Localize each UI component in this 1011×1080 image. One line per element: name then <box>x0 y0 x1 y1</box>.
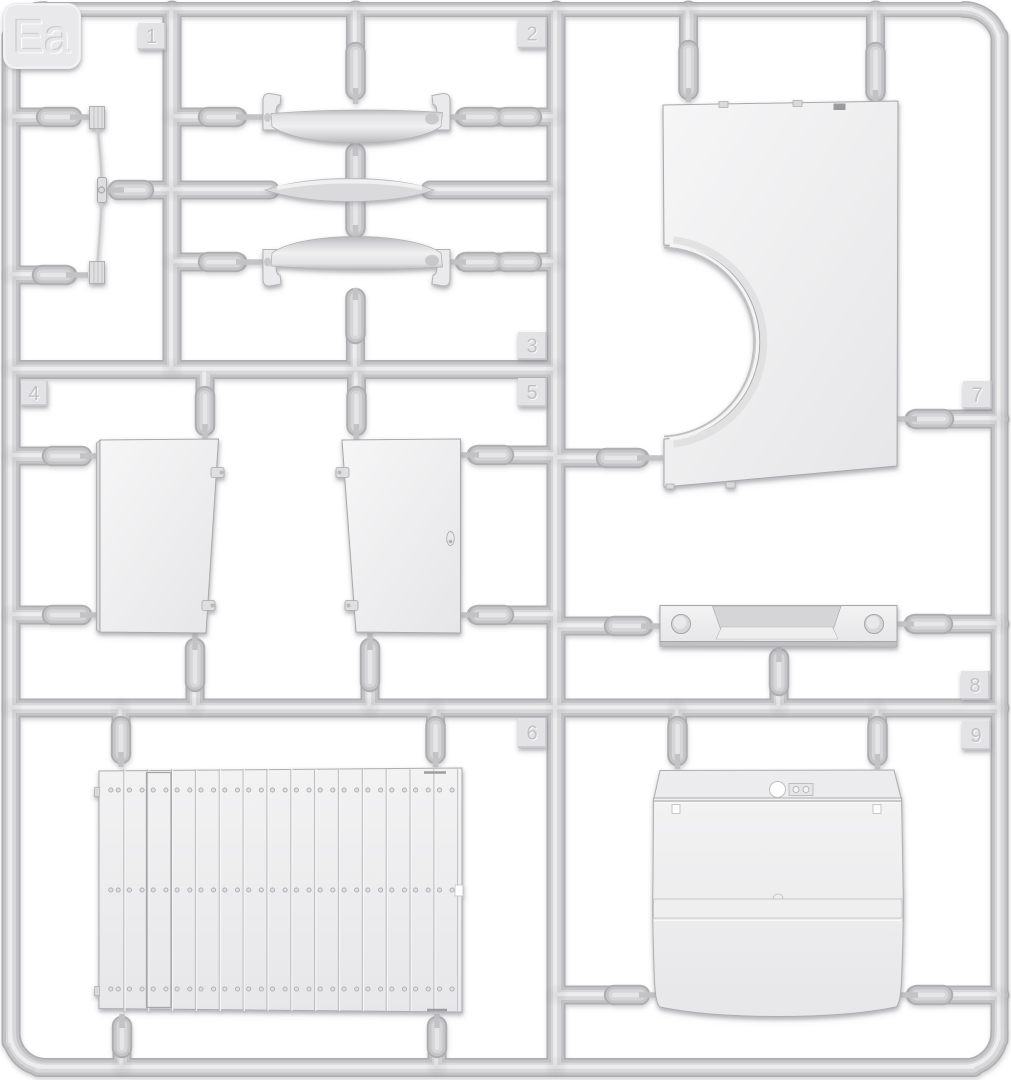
svg-text:6: 6 <box>526 723 537 745</box>
svg-text:Ea: Ea <box>13 10 71 63</box>
svg-text:2: 2 <box>526 24 537 46</box>
svg-text:4: 4 <box>28 383 39 405</box>
svg-text:3: 3 <box>526 336 537 358</box>
svg-text:9: 9 <box>970 725 981 747</box>
svg-text:7: 7 <box>971 385 982 407</box>
svg-text:5: 5 <box>526 382 537 404</box>
svg-text:1: 1 <box>146 26 157 48</box>
svg-text:8: 8 <box>969 675 980 697</box>
